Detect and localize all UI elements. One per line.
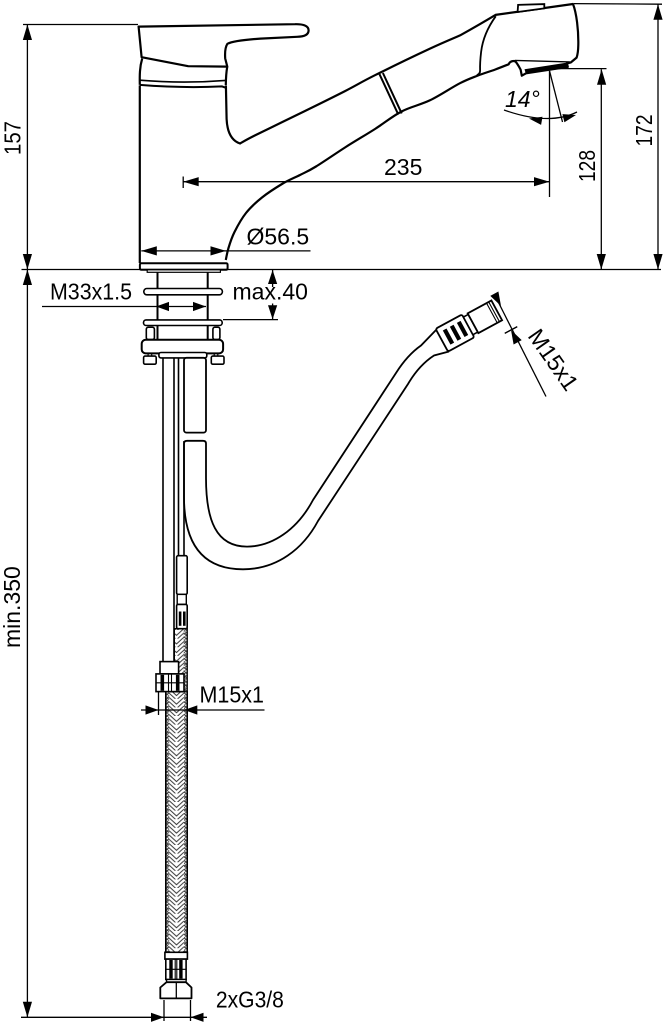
svg-text:14°: 14°: [505, 86, 540, 112]
svg-text:M15x1: M15x1: [200, 682, 265, 708]
svg-text:235: 235: [384, 154, 422, 180]
svg-text:min.350: min.350: [0, 566, 25, 648]
svg-text:max.40: max.40: [233, 279, 308, 305]
svg-text:M33x1.5: M33x1.5: [50, 279, 132, 305]
svg-text:2xG3/8: 2xG3/8: [216, 987, 284, 1013]
svg-text:157: 157: [0, 121, 26, 155]
svg-text:172: 172: [631, 115, 657, 147]
svg-text:128: 128: [574, 150, 600, 182]
svg-text:Ø56.5: Ø56.5: [247, 224, 310, 250]
